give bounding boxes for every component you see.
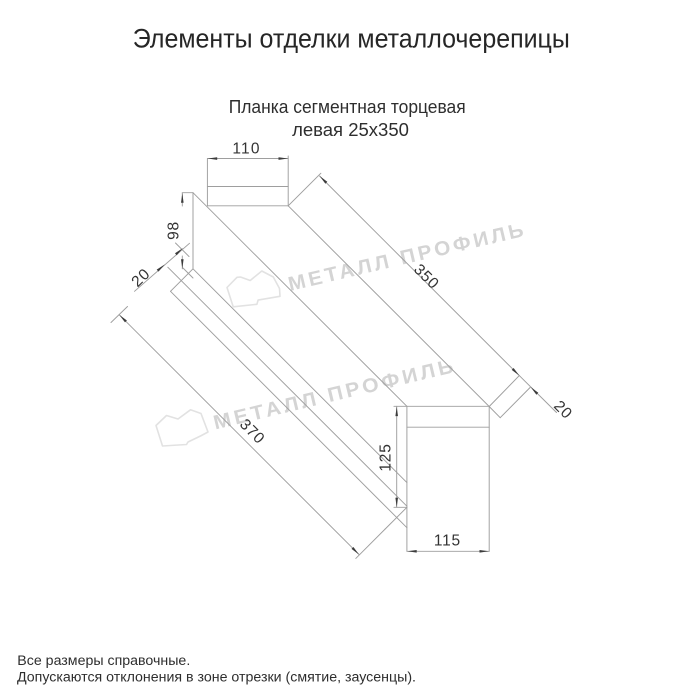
- svg-text:125: 125: [378, 443, 395, 471]
- svg-text:115: 115: [434, 532, 461, 549]
- svg-text:Допускаются отклонения в зоне: Допускаются отклонения в зоне отрезки (с…: [17, 669, 416, 685]
- svg-text:левая 25х350: левая 25х350: [292, 119, 409, 140]
- svg-text:98: 98: [165, 221, 182, 240]
- svg-text:Планка сегментная торцевая: Планка сегментная торцевая: [229, 96, 466, 117]
- svg-text:110: 110: [232, 141, 260, 158]
- svg-text:Все размеры справочные.: Все размеры справочные.: [17, 653, 190, 669]
- svg-text:Элементы отделки металлочерепи: Элементы отделки металлочерепицы: [133, 24, 570, 54]
